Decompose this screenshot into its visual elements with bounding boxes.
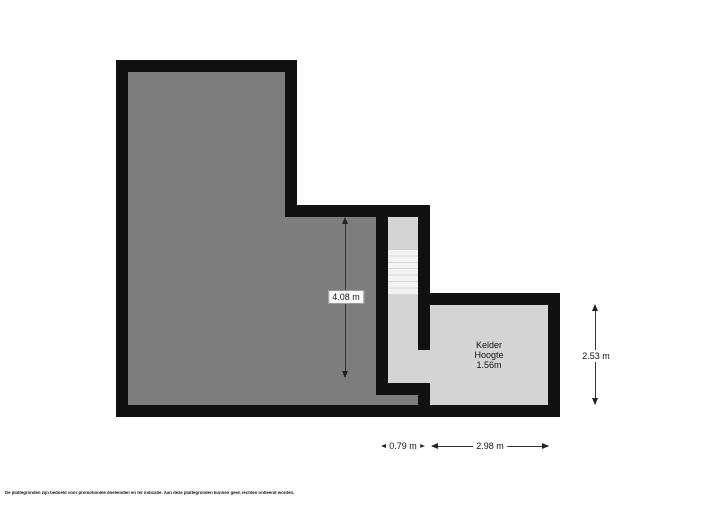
floor-plan: 4.08 m 2.53 m 0.79 m 2.98 m Kelder Hoogt…: [0, 0, 720, 509]
wall-divider-lower: [418, 383, 430, 417]
dimension-label-kelder-width: 2.98 m: [473, 440, 507, 452]
arrow-right-icon: [420, 444, 425, 448]
arrow-up-icon: [342, 217, 348, 224]
arrow-down-icon: [592, 398, 598, 405]
main-room-floor: [128, 72, 285, 405]
main-room-floor-extension: [285, 217, 376, 405]
kelder-height-value: 1.56m: [430, 360, 548, 370]
arrow-up-icon: [592, 304, 598, 311]
wall-stairwell-left: [376, 205, 388, 395]
wall-below-landing: [376, 383, 418, 395]
dimension-label-stair-width: 0.79 m: [386, 440, 420, 452]
dimension-label-main-room-height: 4.08 m: [328, 290, 364, 304]
kelder-height-word: Hoogte: [430, 350, 548, 360]
wall-bottom: [116, 405, 560, 417]
wall-top: [116, 60, 297, 72]
staircase: [388, 250, 418, 295]
wall-divider-upper: [418, 305, 430, 350]
doorway-opening: [418, 350, 430, 383]
wall-left: [116, 60, 128, 417]
main-room-floor-notch: [376, 395, 418, 405]
disclaimer-text: De plattegronden zijn bedoeld voor promo…: [5, 491, 294, 495]
wall-stairwell-right: [418, 205, 430, 305]
wall-notch-horizontal: [285, 205, 430, 217]
arrow-right-icon: [542, 443, 549, 449]
kelder-room-name: Kelder: [430, 340, 548, 350]
kelder-room-label: Kelder Hoogte 1.56m: [430, 340, 548, 370]
stairwell-floor: [388, 217, 418, 383]
wall-kelder-top: [418, 293, 560, 305]
arrow-left-icon: [431, 443, 438, 449]
wall-kelder-right: [548, 293, 560, 417]
arrow-down-icon: [342, 371, 348, 378]
dimension-label-kelder-height: 2.53 m: [579, 350, 613, 362]
wall-right-upper: [285, 60, 297, 217]
